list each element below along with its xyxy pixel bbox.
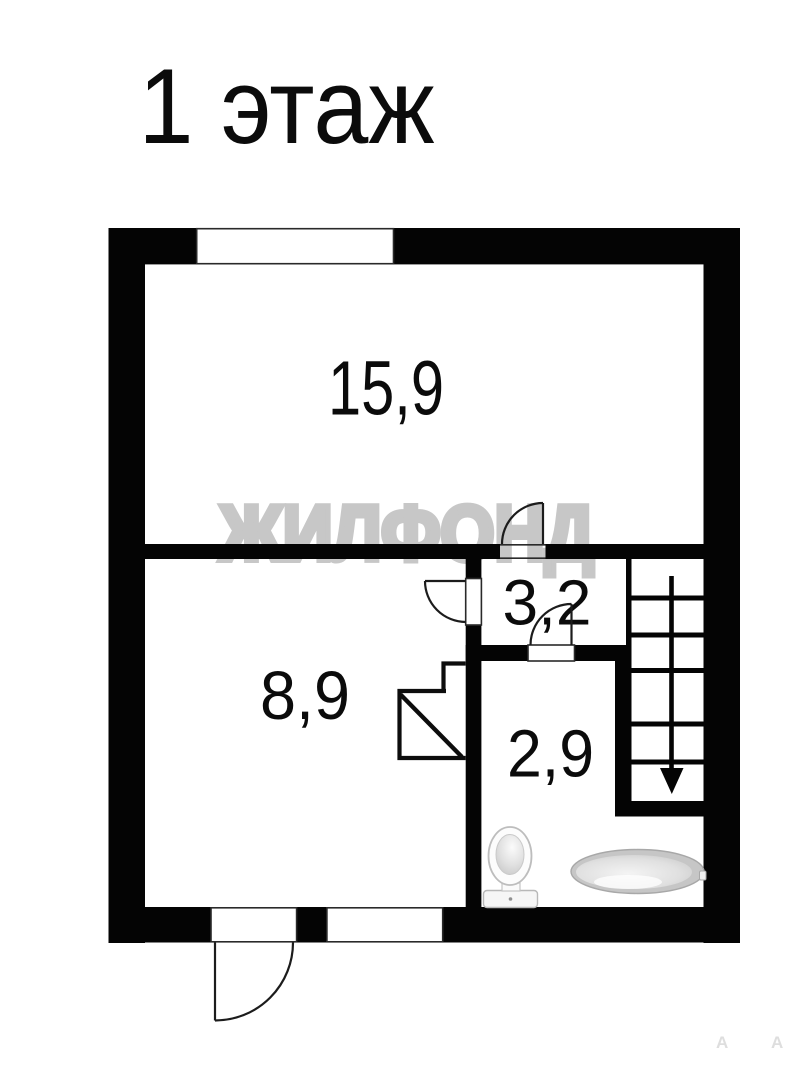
svg-text:А: А [716, 1033, 728, 1052]
svg-text:А: А [771, 1033, 783, 1052]
svg-text:1 этаж: 1 этаж [139, 46, 435, 166]
svg-text:3,2: 3,2 [503, 567, 592, 639]
svg-text:15,9: 15,9 [328, 346, 444, 432]
svg-text:8,9: 8,9 [260, 657, 350, 734]
svg-text:2,9: 2,9 [507, 717, 594, 792]
